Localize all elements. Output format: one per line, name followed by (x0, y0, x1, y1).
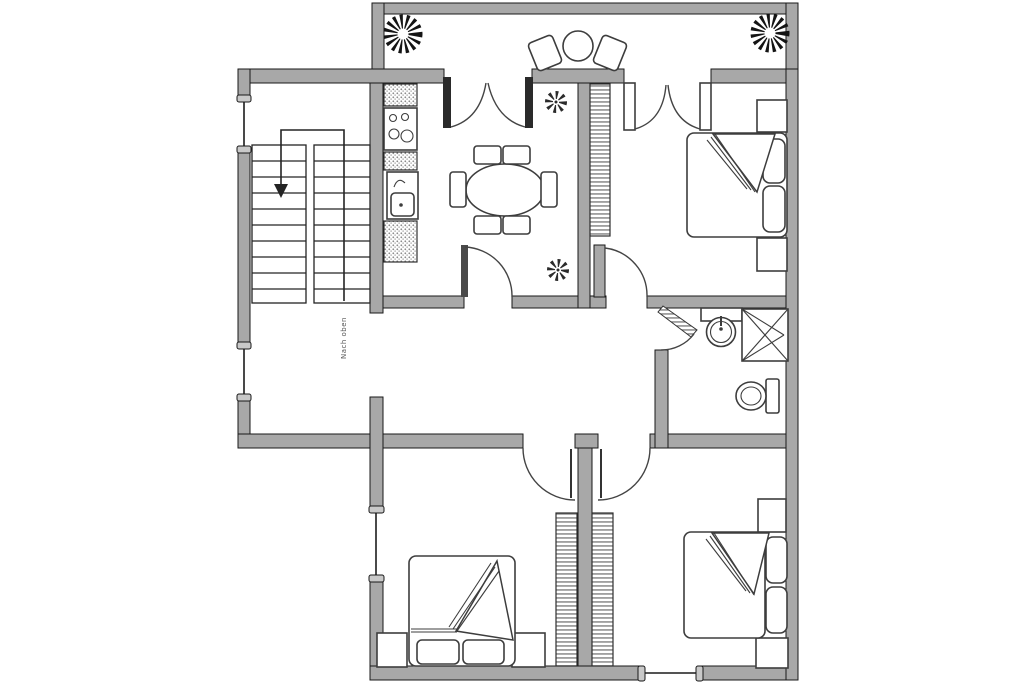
kitchen-bottom-wall-a (383, 296, 464, 308)
plant-icon (551, 263, 565, 277)
wardrobe (592, 513, 613, 666)
left-wall-mid (238, 148, 250, 346)
balcony (391, 21, 783, 72)
door-bathroom (658, 306, 697, 350)
staircase: Nach oben (252, 130, 370, 359)
plant-icon (549, 95, 563, 109)
potted-plant-icon (391, 22, 416, 47)
stair-direction-arrow-icon (274, 184, 288, 198)
bottom-wall-left (370, 666, 642, 680)
window-bedroom3 (638, 666, 703, 681)
stair-flight-left (252, 145, 306, 303)
pillow (763, 186, 785, 232)
top-wall-mid (532, 69, 624, 83)
bedroom-top-right (590, 84, 787, 271)
bathroom-left-wall (655, 350, 668, 448)
window-stairhall-upper (237, 95, 251, 153)
bedrooms-center-divider (578, 448, 592, 666)
bedroom-bottom-left (377, 513, 577, 667)
potted-plant-icon (758, 21, 783, 46)
hall-center-stub-wall (575, 434, 598, 448)
nightstand (512, 633, 545, 667)
door-bedroom1-hall (594, 245, 647, 297)
bathroom (701, 308, 788, 413)
balcony-left-wall (372, 3, 384, 69)
stair-direction-line (281, 130, 344, 301)
washbasin (701, 308, 742, 347)
dining-chair (474, 146, 501, 164)
kitchen-sink (387, 172, 418, 219)
dining-chair (541, 172, 557, 207)
dining-chair (503, 146, 530, 164)
bedroom1-bottom-wall-b (647, 296, 786, 308)
shower (742, 309, 788, 361)
bedroom1-bottom-wall-a (590, 296, 606, 308)
top-wall-left (238, 69, 444, 83)
wardrobe (556, 513, 577, 666)
lowerleft-wall-upper (370, 397, 383, 510)
pillow (463, 640, 504, 664)
dining-table (466, 164, 544, 216)
door-kitchen-hall (461, 245, 512, 297)
dining-chair (450, 172, 466, 207)
door-bedroom3 (598, 448, 650, 500)
balcony-top-wall (372, 3, 798, 14)
balcony-chair (592, 34, 627, 72)
pillow (766, 537, 787, 583)
kitchen-bottom-wall-b (512, 296, 578, 308)
bedroom-bottom-right (592, 499, 788, 668)
floor-plan-svg: Nach oben (0, 0, 1024, 683)
counter-section (384, 152, 417, 170)
pillow (417, 640, 459, 664)
pillow (766, 587, 787, 633)
nightstand (757, 238, 787, 271)
dining-chair (503, 216, 530, 234)
nightstand (757, 100, 787, 132)
floor-plan-page: Nach oben (0, 0, 1024, 683)
french-door-dining (443, 77, 533, 128)
dining-bedroom-divider (578, 83, 590, 308)
toilet (736, 379, 779, 413)
stairs-label: Nach oben (340, 317, 348, 359)
top-wall-right (711, 69, 798, 83)
door-bedroom2 (523, 448, 575, 500)
counter-section (384, 84, 417, 106)
window-bedroom2 (369, 506, 384, 582)
wardrobe (590, 84, 610, 236)
stair-treads (252, 161, 370, 289)
cooktop (384, 108, 417, 150)
french-door-bedroom1 (624, 83, 711, 130)
balcony-chair (527, 34, 562, 72)
stair-flight-right (314, 145, 370, 303)
bathroom-bottom-wall (650, 434, 786, 448)
kitchen (384, 84, 418, 262)
nightstand (377, 633, 407, 667)
stair-kitchen-divider (370, 83, 383, 313)
bistro-table (563, 31, 593, 61)
window-stairhall-lower (237, 342, 251, 401)
counter-section (384, 221, 417, 262)
nightstand (758, 499, 786, 532)
dining-chair (474, 216, 501, 234)
nightstand (756, 638, 788, 668)
